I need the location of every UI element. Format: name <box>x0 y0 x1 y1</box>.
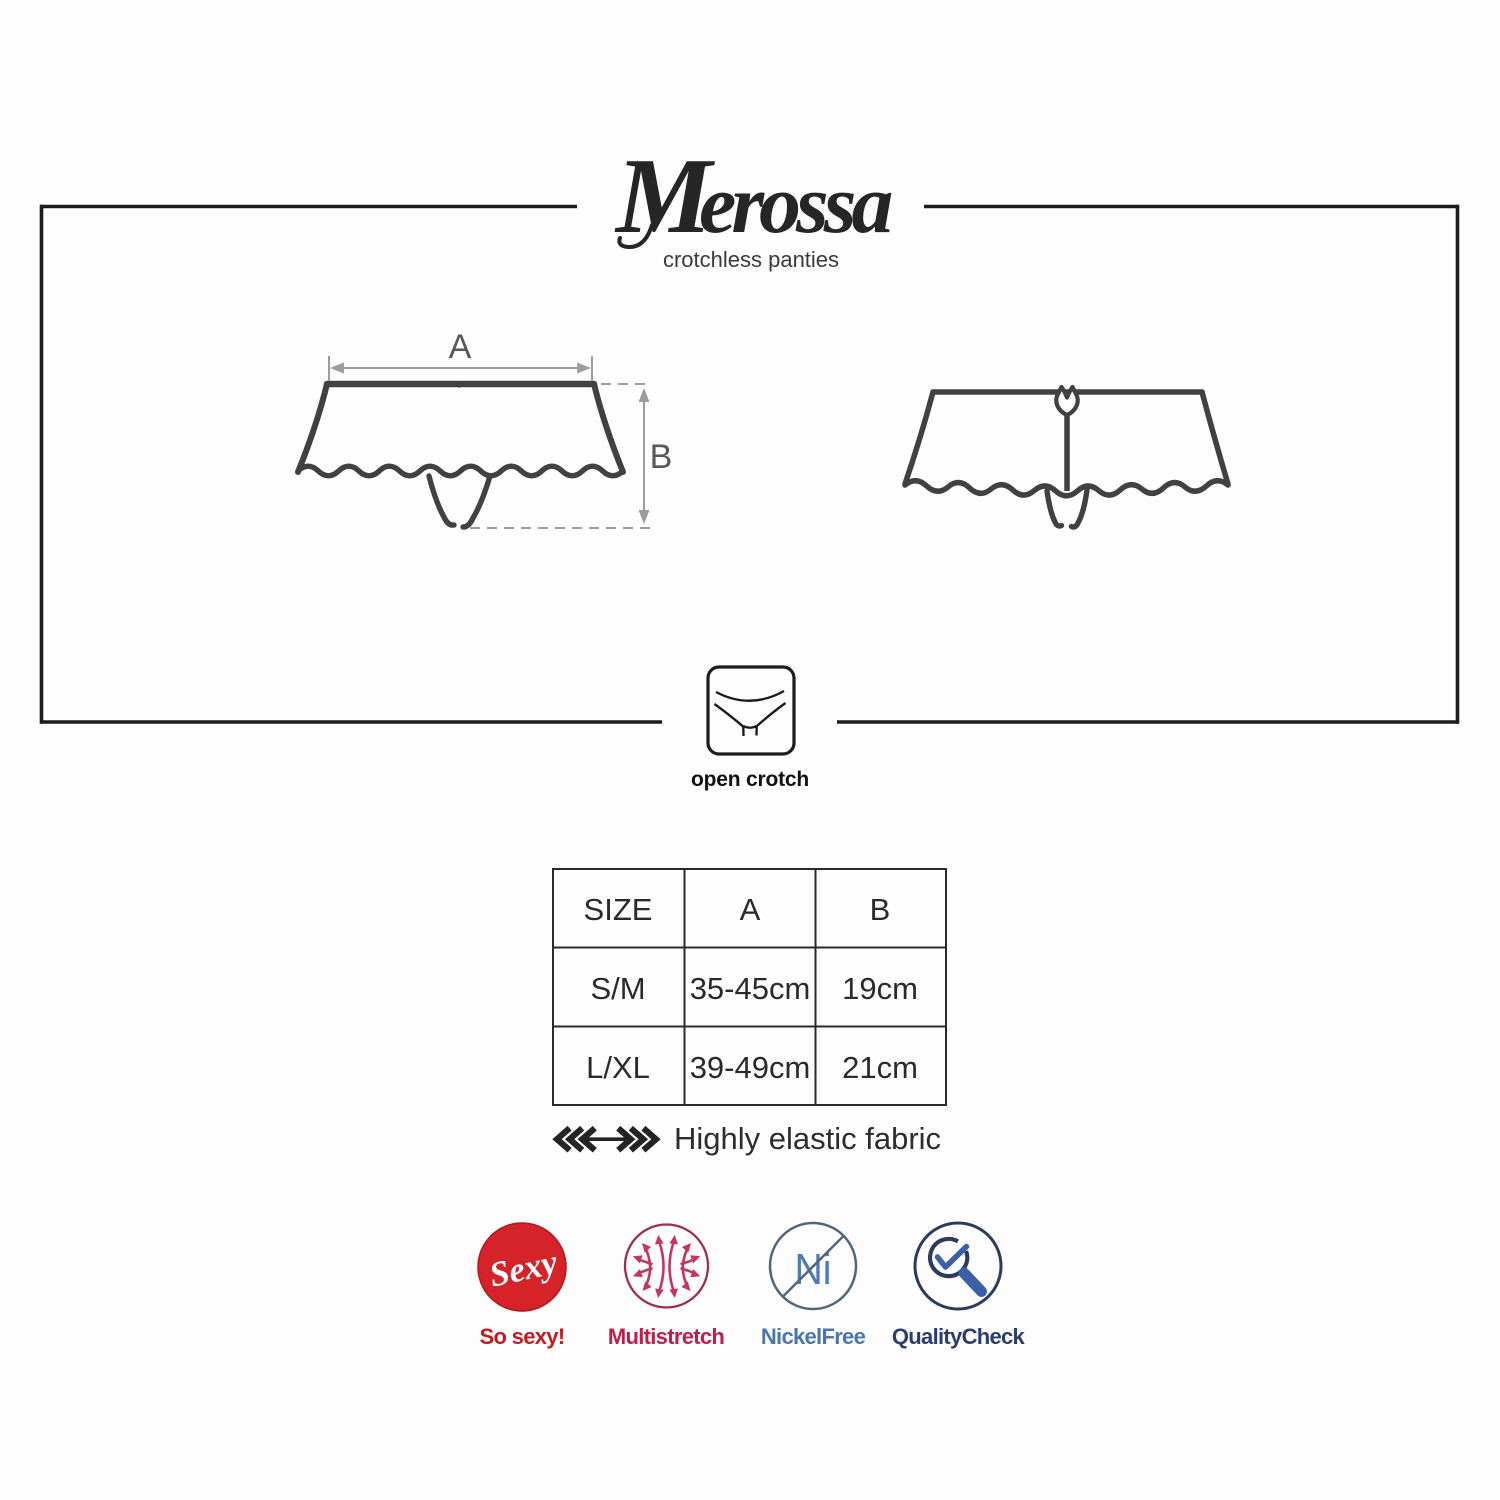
svg-text:Merossa: Merossa <box>614 137 891 256</box>
svg-text:S/M: S/M <box>590 971 645 1006</box>
svg-text:21cm: 21cm <box>842 1050 918 1085</box>
svg-text:B: B <box>870 892 891 927</box>
svg-text:39-49cm: 39-49cm <box>690 1050 811 1085</box>
svg-text:A: A <box>740 892 761 927</box>
svg-text:Highly elastic fabric: Highly elastic fabric <box>674 1121 941 1156</box>
svg-text:L/XL: L/XL <box>586 1050 650 1085</box>
svg-text:B: B <box>650 438 673 476</box>
svg-text:SIZE: SIZE <box>584 892 653 927</box>
svg-text:A: A <box>449 328 472 366</box>
svg-text:19cm: 19cm <box>842 971 918 1006</box>
svg-text:NickelFree: NickelFree <box>761 1324 866 1349</box>
svg-text:So sexy!: So sexy! <box>480 1324 565 1349</box>
svg-text:open crotch: open crotch <box>691 768 809 791</box>
svg-text:Multistretch: Multistretch <box>608 1324 725 1349</box>
svg-text:35-45cm: 35-45cm <box>690 971 811 1006</box>
svg-text:crotchless panties: crotchless panties <box>663 247 839 272</box>
svg-text:QualityCheck: QualityCheck <box>892 1324 1026 1349</box>
